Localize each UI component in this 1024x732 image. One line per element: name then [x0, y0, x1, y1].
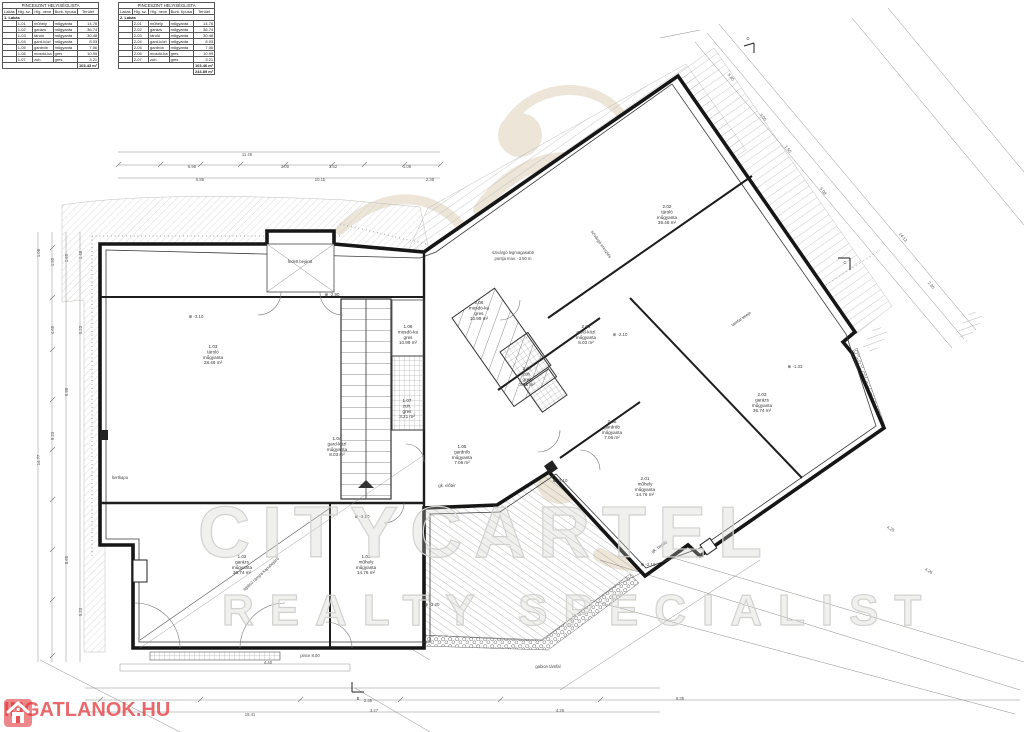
- room-label-finish: műgyanta: [657, 215, 678, 220]
- room-label-finish: műgyanta: [327, 447, 348, 452]
- room-label-finish: műgyanta: [752, 403, 773, 408]
- column-header: Lakás: [119, 9, 133, 15]
- dimension-value: 1.08: [36, 248, 41, 257]
- dimension-value: 1.65: [64, 253, 69, 262]
- annotation: gk. előtér: [438, 483, 456, 488]
- room-label-area: 3.21 m²: [399, 414, 415, 419]
- column-header: Hlg. neve: [149, 9, 170, 15]
- annotation: D: [746, 36, 749, 41]
- room-label-area: 7.06 m²: [604, 435, 620, 440]
- annotation: pontja max. -3.50 m: [494, 256, 532, 261]
- annotation: fedett bejárat: [288, 259, 313, 264]
- dimension-value: 1.50: [50, 257, 55, 266]
- room-label-name: tároló: [661, 209, 673, 214]
- room-label-area: 14.76 m²: [357, 570, 376, 575]
- dimension-value: 3.27: [370, 708, 379, 713]
- room-label-area: 10.99 m²: [470, 316, 489, 321]
- dimension-value: 5.23: [78, 607, 83, 616]
- level-mark: ⊕ -1.33: [788, 364, 803, 369]
- room-label-id: 1.04: [333, 436, 342, 441]
- room-label-id: 2.07: [523, 366, 532, 371]
- dimension-value: 2.38: [426, 177, 435, 182]
- level-mark: ⊕ -2.10: [613, 332, 628, 337]
- dimension-value: 10.15: [315, 177, 326, 182]
- column-header: Lakás: [3, 9, 17, 15]
- column-header: Hlg. sz.: [132, 9, 148, 15]
- room-label-area: 36.74 m²: [753, 408, 772, 413]
- annotation: gabion támfal: [535, 664, 560, 669]
- room-label-finish: műgyanta: [635, 487, 656, 492]
- room-label-id: 2.05: [608, 419, 617, 424]
- column-header: Burk. típusa: [169, 9, 193, 15]
- floorplan-sheet: 1.03tárolóműgyanta28.46 m²1.06mosdó-kagr…: [0, 0, 1024, 732]
- room-label-id: 1.06: [404, 324, 413, 329]
- room-label-finish: gres: [403, 409, 413, 414]
- room-label-id: 2.06: [475, 300, 484, 305]
- dimension-value: 4.65: [50, 325, 55, 334]
- dimension-value: 4.25: [886, 524, 896, 533]
- column-header: Burk. típusa: [53, 9, 77, 15]
- room-label-name: gardrób: [454, 449, 470, 454]
- room-label-finish: gres: [523, 377, 533, 382]
- annotation: szivárgó legmagasabb: [492, 250, 535, 255]
- dimension-value: 5.85: [196, 177, 205, 182]
- dimension-value: 6.98: [188, 164, 197, 169]
- room-label-id: 1.03: [209, 344, 218, 349]
- dimension-value: 4.26: [556, 708, 565, 713]
- room-label-name: zuh.: [523, 371, 532, 376]
- room-label-id: 1.05: [458, 444, 467, 449]
- dimension-value: 1.48: [78, 250, 83, 259]
- room-label-name: műhely: [638, 481, 654, 486]
- room-label-id: 2.03: [758, 392, 767, 397]
- room-label-finish: gres: [475, 311, 485, 316]
- room-label-area: 14.76 m²: [636, 492, 655, 497]
- dimension-value: 4.40: [264, 660, 273, 665]
- table1-total: 103.43 m²: [77, 63, 98, 69]
- room-label-name: garázs: [235, 559, 249, 564]
- room-label-id: 1.02: [238, 554, 247, 559]
- room-label-name: tároló: [207, 349, 219, 354]
- column-header: Hlg. neve: [33, 9, 54, 15]
- room-label-area: 3.21 m²: [519, 382, 535, 387]
- floorplan-drawing: 1.03tárolóműgyanta28.46 m²1.06mosdó-kagr…: [0, 0, 1024, 732]
- room-label-name: gard-közl: [577, 329, 596, 334]
- level-mark: ⊕ -2.10: [553, 478, 568, 483]
- room-label-name: gard-közl: [328, 441, 347, 446]
- room-label-id: 1.07: [403, 398, 412, 403]
- room-label-id: 2.04: [582, 324, 591, 329]
- dimension-value: 4.26: [924, 566, 934, 575]
- level-mark: ⊕ -3.20: [425, 602, 440, 607]
- room-label-name: gardrób: [604, 424, 620, 429]
- room-label-finish: műgyanta: [356, 565, 377, 570]
- dimension-value: 9.23: [50, 431, 55, 440]
- room-list-table-2: PINCESZINT HELYISÉGLISTA LakásHlg. sz.Hl…: [118, 2, 215, 75]
- dimension-value: 2.30: [927, 280, 937, 290]
- room-label-area: 7.06 m²: [454, 460, 470, 465]
- room-label-finish: műgyanta: [602, 430, 623, 435]
- dimension-value: 8.65: [64, 555, 69, 564]
- room-label-id: 2.01: [641, 476, 650, 481]
- level-mark: ⊕ -3.10: [189, 314, 204, 319]
- room-label-finish: műgyanta: [576, 335, 597, 340]
- room-label-id: 1.01: [362, 554, 371, 559]
- room-label-name: zuh.: [403, 403, 412, 408]
- annotation: kertkapu: [112, 475, 129, 480]
- room-label-area: 10.99 m²: [399, 340, 418, 345]
- dimension-value: 3.52: [329, 164, 338, 169]
- room-label-area: 35.46 m²: [658, 220, 677, 225]
- room-label-name: garázs: [755, 397, 769, 402]
- dimension-value: 3.00: [281, 164, 290, 169]
- dimension-value: 5.08: [819, 186, 829, 196]
- ingatlanok-logo: INGATLANOK.HU: [4, 699, 170, 722]
- annotation: B: [357, 696, 360, 701]
- house-icon: [4, 699, 32, 727]
- room-label-finish: műgyanta: [452, 455, 473, 460]
- dimension-value: 1.08: [403, 164, 412, 169]
- room-label-area: 8.03 m²: [578, 340, 594, 345]
- room-label-name: mosdó-ka: [398, 329, 419, 334]
- column-header: Hlg. sz.: [16, 9, 32, 15]
- room-label-finish: műgyanta: [232, 565, 253, 570]
- dimension-value: 6.35: [676, 696, 685, 701]
- annotation: C: [843, 260, 846, 265]
- table2-grand-total: 244.89 m²: [193, 69, 214, 75]
- room-label-area: 8.03 m²: [329, 452, 345, 457]
- dimension-value: 14.77: [36, 454, 41, 465]
- room-label-id: 2.02: [663, 204, 672, 209]
- room-label-area: 36.74 m²: [233, 570, 252, 575]
- room-list-table-1: PINCESZINT HELYISÉGLISTA LakásHlg. sz.Hl…: [2, 2, 99, 69]
- dimension-value: 11.46: [242, 152, 253, 157]
- room-label-finish: gres: [404, 335, 414, 340]
- annotation: pince 8.00: [300, 653, 320, 658]
- dimension-value: 2.35: [364, 698, 373, 703]
- dimension-value: 5.23: [78, 325, 83, 334]
- room-label-name: mosdó-ka: [469, 305, 490, 310]
- dimension-value: 6.98: [64, 387, 69, 396]
- room-label-name: műhely: [359, 559, 375, 564]
- level-mark: ⊕ -2.10: [641, 562, 656, 567]
- level-mark: ⊕ -2.90: [325, 292, 340, 297]
- dimension-value: 14.13: [898, 231, 909, 243]
- room-label-area: 28.46 m²: [204, 360, 223, 365]
- room-label-finish: műgyanta: [203, 355, 224, 360]
- table2-total: 103.46 m²: [193, 63, 214, 69]
- dimension-value: 19.41: [245, 712, 256, 717]
- level-mark: ⊕ -3.10: [355, 514, 370, 519]
